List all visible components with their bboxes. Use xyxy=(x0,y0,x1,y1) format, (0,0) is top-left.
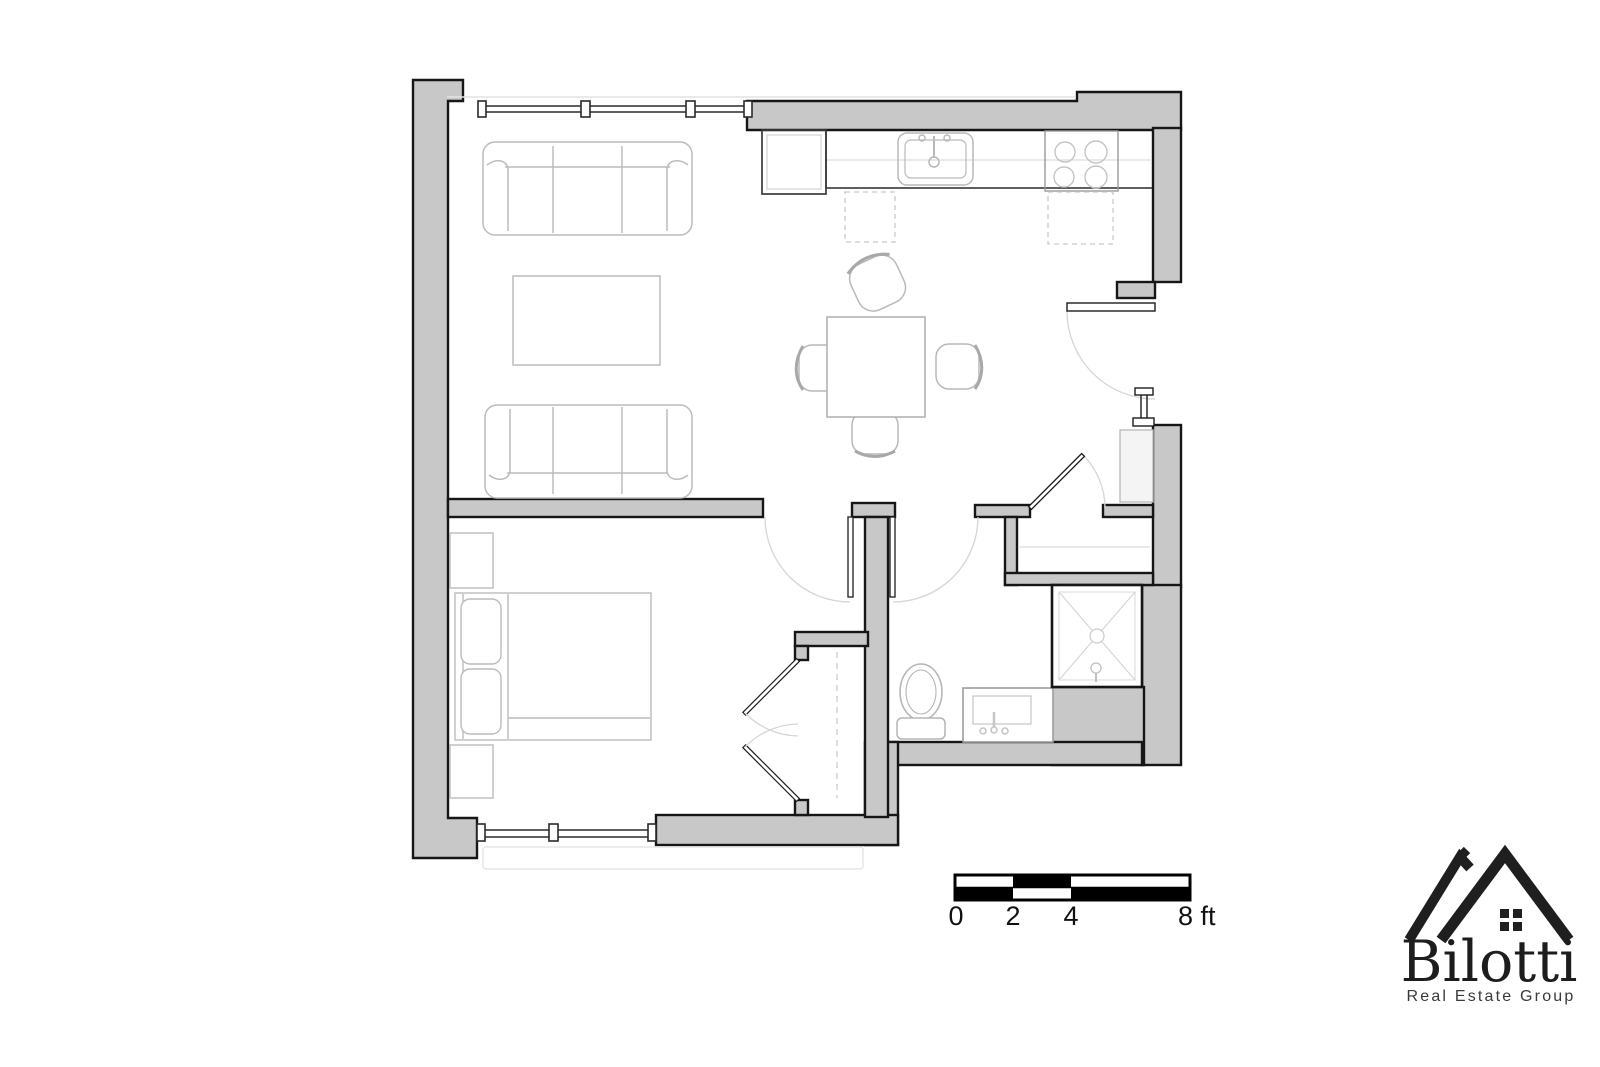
shower-valve xyxy=(1091,663,1101,673)
entry-door-jamb-wall xyxy=(1117,282,1155,298)
dishwasher xyxy=(845,192,895,242)
bedroom xyxy=(450,533,837,801)
dining-set xyxy=(796,248,982,457)
right-wall-upper xyxy=(1153,128,1181,282)
sofa-top xyxy=(483,142,692,235)
living-room xyxy=(483,142,692,498)
dining-chair-right xyxy=(936,344,982,389)
dining-chair-bottom xyxy=(852,412,898,457)
scale-bar: 0 2 4 8 ft xyxy=(948,875,1216,931)
bath-hall-wall xyxy=(865,517,888,817)
bedroom-window xyxy=(477,824,656,841)
living-room-window xyxy=(478,101,752,117)
scale-label-8ft: 8 ft xyxy=(1178,901,1216,931)
wardrobe-doors xyxy=(743,659,800,802)
toilet xyxy=(897,664,945,739)
logo-brand: Bilotti xyxy=(1401,929,1578,995)
scale-label-4: 4 xyxy=(1063,901,1078,931)
coffee-table xyxy=(513,276,660,365)
kitchen xyxy=(762,130,1152,244)
sofa-bottom xyxy=(485,405,692,498)
logo: Bilotti Real Estate Group xyxy=(1401,850,1578,1005)
dining-table xyxy=(827,317,925,417)
bed xyxy=(455,593,651,740)
nightstand-bottom xyxy=(450,745,493,798)
dining-chair-top xyxy=(843,248,911,317)
kitchen-sink xyxy=(898,133,973,185)
scale-label-2: 2 xyxy=(1005,901,1020,931)
window-icon xyxy=(1500,909,1522,931)
right-wall-lower xyxy=(1142,585,1181,765)
bathroom-door xyxy=(890,517,978,602)
refrigerator xyxy=(762,130,826,194)
bedroom-door xyxy=(765,517,853,602)
oven xyxy=(1048,192,1113,244)
floor-plan: 0 2 4 8 ft Bilotti Real Estate Group xyxy=(0,0,1600,1067)
patio-outline xyxy=(483,847,863,869)
entry-closet-bottom-wall xyxy=(1005,573,1153,585)
shower xyxy=(1052,585,1142,687)
scale-segment xyxy=(1071,888,1190,901)
right-wall-mid xyxy=(1153,425,1181,587)
bedroom-closet-stub-bottom xyxy=(795,800,808,815)
hall-stub-wall xyxy=(975,505,1030,517)
logo-tagline: Real Estate Group xyxy=(1406,988,1575,1005)
scale-label-0: 0 xyxy=(948,901,963,931)
door-pier-wall xyxy=(852,503,895,517)
nightstand-top xyxy=(450,533,493,588)
pillow xyxy=(461,669,501,734)
living-bedroom-divider-wall xyxy=(448,499,763,517)
scale-segment xyxy=(955,888,1013,901)
entry-cabinet xyxy=(1120,430,1153,502)
entry-door xyxy=(1067,303,1155,399)
entry-closet-door xyxy=(1029,454,1105,510)
bedroom-closet-stub-top xyxy=(795,646,808,660)
roof-icon xyxy=(1409,850,1569,940)
pillow xyxy=(461,599,501,664)
scale-segment xyxy=(1013,875,1071,888)
left-wall xyxy=(413,80,477,858)
vanity-sink xyxy=(963,688,1053,742)
entry-closet-right-stub xyxy=(1103,505,1153,517)
cooktop xyxy=(1045,131,1118,191)
bedroom-bottom-wall xyxy=(656,815,898,845)
bedroom-closet-top-wall xyxy=(795,632,868,646)
wall-pipe-detail xyxy=(1133,388,1154,426)
bath-bottom-wall xyxy=(868,742,1142,765)
shower-drain xyxy=(1090,629,1104,643)
